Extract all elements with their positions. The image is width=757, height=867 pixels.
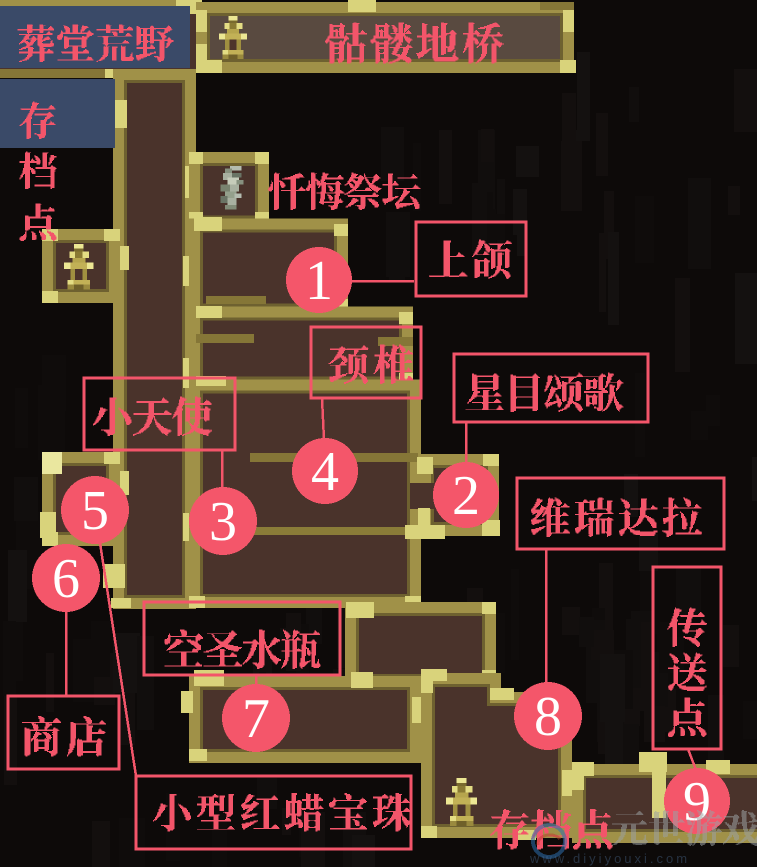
svg-text:4: 4 [311, 441, 339, 503]
svg-text:7: 7 [242, 688, 270, 750]
svg-text:www.diyiyouxi.com: www.diyiyouxi.com [529, 851, 690, 866]
svg-text:5: 5 [81, 480, 109, 542]
svg-text:2: 2 [452, 465, 480, 527]
svg-text:3: 3 [209, 491, 237, 553]
svg-text:8: 8 [534, 686, 562, 748]
svg-text:1: 1 [305, 250, 333, 312]
svg-text:6: 6 [52, 548, 80, 610]
